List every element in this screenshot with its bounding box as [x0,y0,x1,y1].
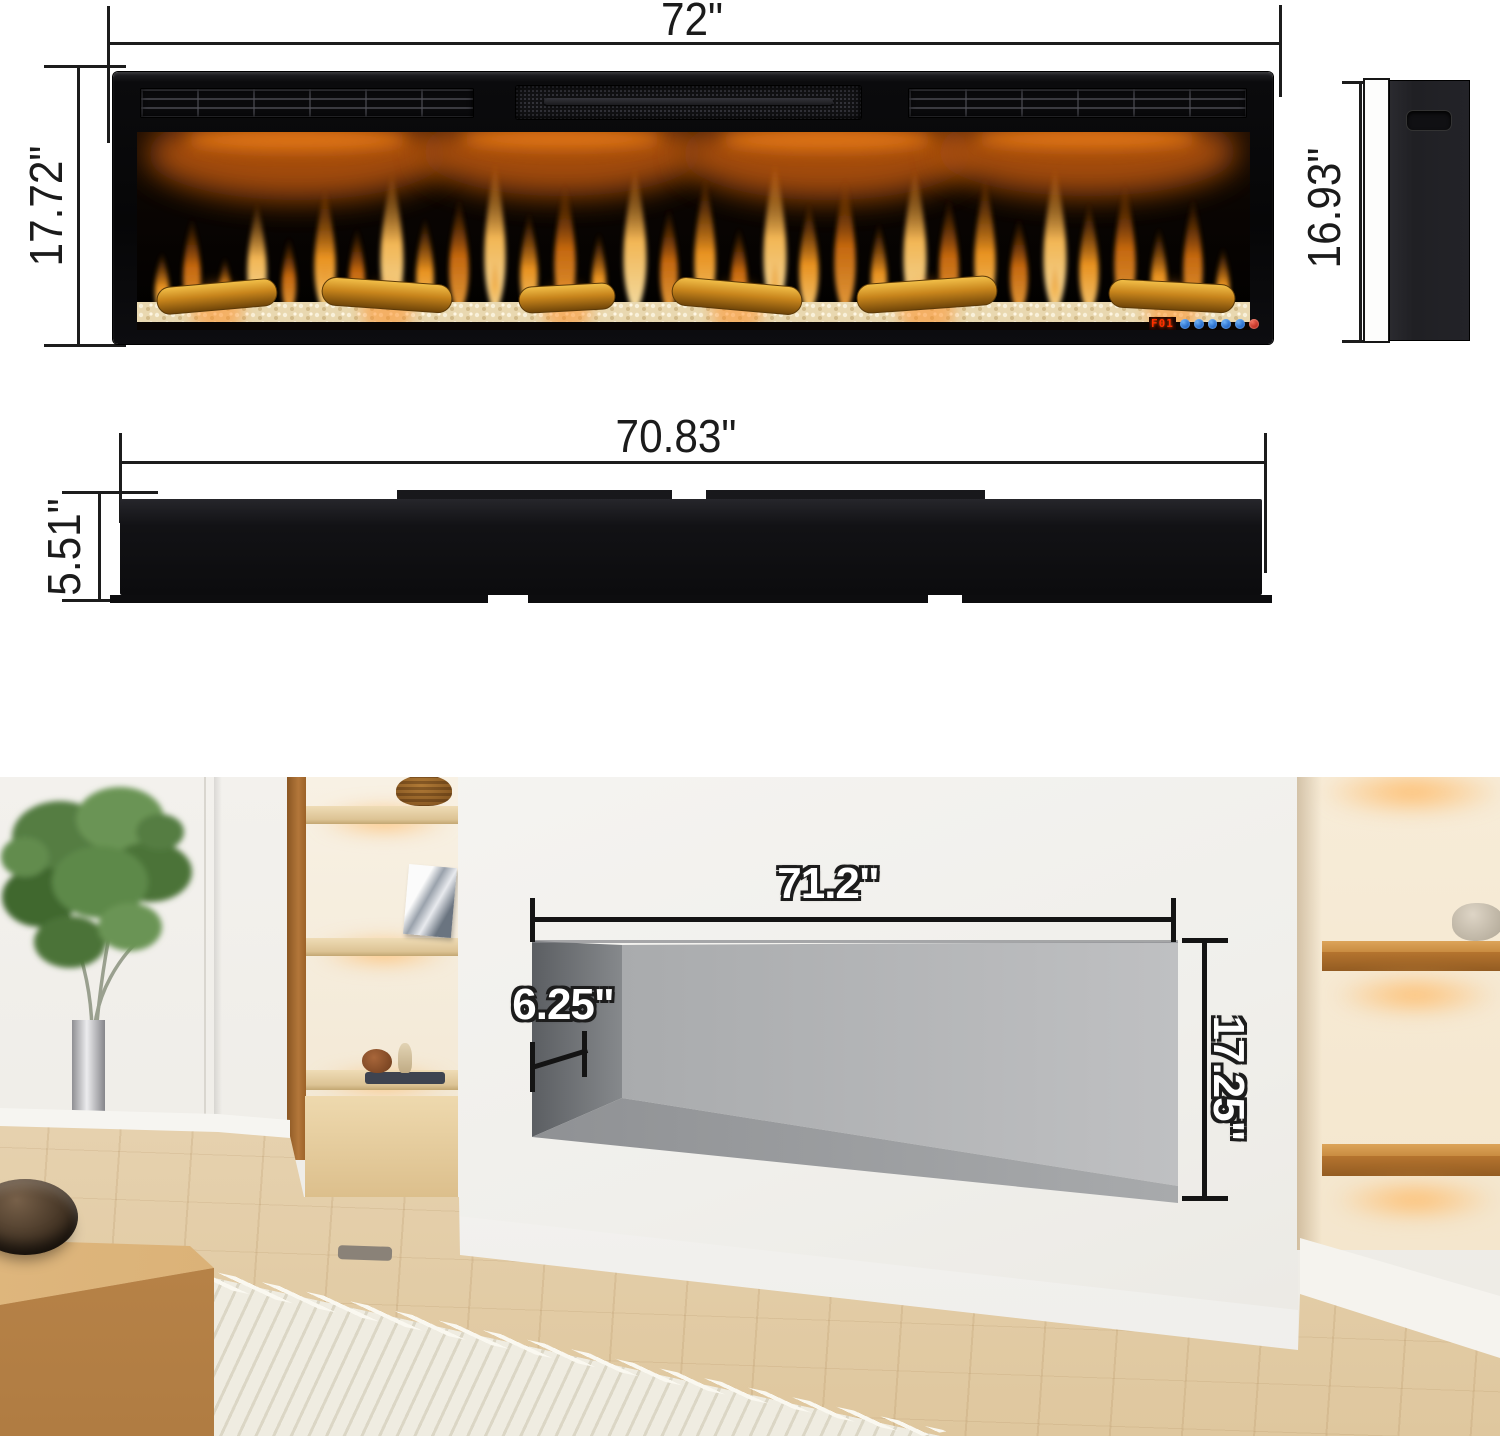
shelf-light-glow [1330,1178,1500,1222]
front-width-dim-tick-left [107,6,110,143]
wall-corner-shadow [214,777,222,1162]
top-depth-label: 5.51" [37,498,91,595]
front-height-label: 17.72" [19,146,73,267]
side-height-dim-line [1359,82,1362,342]
touch-control-panel: F01 [1149,315,1259,332]
heater-outlet-vent [515,85,862,120]
opening-width-tick-left [530,898,535,942]
right-shelf-2-top [1322,1144,1500,1156]
front-width-dim-tick-right [1279,5,1282,97]
opening-width-dim-line [532,917,1176,922]
left-niche-interior [306,777,459,1097]
front-height-dim-tick-top [44,65,126,68]
side-body [1389,80,1470,341]
shelf-tray [365,1072,445,1084]
opening-height-label: 17.25" [1203,1016,1253,1141]
front-height-dim-tick-bottom [44,344,126,347]
air-vent-left [140,88,474,118]
color-mode-button [1221,319,1231,329]
top-view-body [120,499,1262,595]
front-height-dim-line [77,66,80,346]
top-width-label: 70.83" [616,409,737,463]
left-niche-side-panel [287,777,306,1160]
top-view-bottom-flange [110,595,1272,603]
fireplace-dimension-sheet: 72" 17.72" [0,0,1500,1436]
wall-recess-cutout [520,930,1200,1220]
top-depth-dim-line [98,492,101,602]
shelf-light-glow [1330,973,1500,1017]
opening-height-tick-top [1182,938,1228,943]
side-handle-cutout [1406,110,1452,131]
opening-height-tick-bottom [1182,1196,1228,1201]
left-niche-shelf-1 [306,806,459,824]
flame-scene [137,132,1250,330]
opening-width-label: 71.2" [777,859,879,909]
shelf-light-glow [1317,777,1500,817]
heat-button [1235,319,1245,329]
right-shelf-2-front [1322,1156,1500,1176]
brightness-button [1208,319,1218,329]
top-width-dim-tick-right [1264,433,1267,573]
installation-room-photo: 71.2" 6.25" 17.25" [0,777,1500,1436]
woven-basket [396,777,452,806]
plant-vase-body [72,1020,105,1116]
fireplace-glass-window [137,132,1250,330]
right-niche-corner-shade [1297,777,1322,1250]
framed-art [403,864,457,938]
power-button [1249,319,1259,329]
side-front-flange [1363,78,1390,343]
top-depth-dim-tick-top [62,491,158,494]
decor-stone-brown [362,1049,392,1073]
floor-vent [338,1245,392,1261]
potted-plant [0,777,210,1037]
left-niche-base-panel [305,1096,459,1197]
led-display: F01 [1149,317,1176,330]
front-width-label: 72" [661,0,723,46]
decor-stone-cream [398,1043,412,1073]
air-vent-right [908,88,1247,118]
right-shelf-1-top [1322,941,1500,952]
opening-width-tick-right [1171,898,1176,942]
flame-button [1180,319,1190,329]
flange-notch-left [488,595,528,603]
recess-depth-label: 6.25" [512,980,614,1030]
left-niche-shelf-2 [306,938,459,956]
side-height-label: 16.93" [1297,148,1351,269]
flange-notch-right [928,595,962,603]
right-shelf-1-front [1322,952,1500,971]
timer-button [1194,319,1204,329]
decor-stone-right [1452,903,1500,941]
